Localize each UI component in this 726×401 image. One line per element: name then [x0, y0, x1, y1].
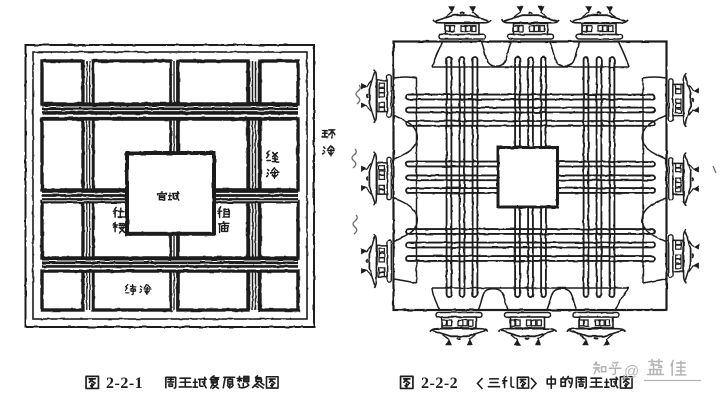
svg-text:2-2-2: 2-2-2 [421, 375, 458, 392]
svg-text:@: @ [624, 363, 639, 380]
svg-text:2-2-1: 2-2-1 [106, 375, 143, 392]
